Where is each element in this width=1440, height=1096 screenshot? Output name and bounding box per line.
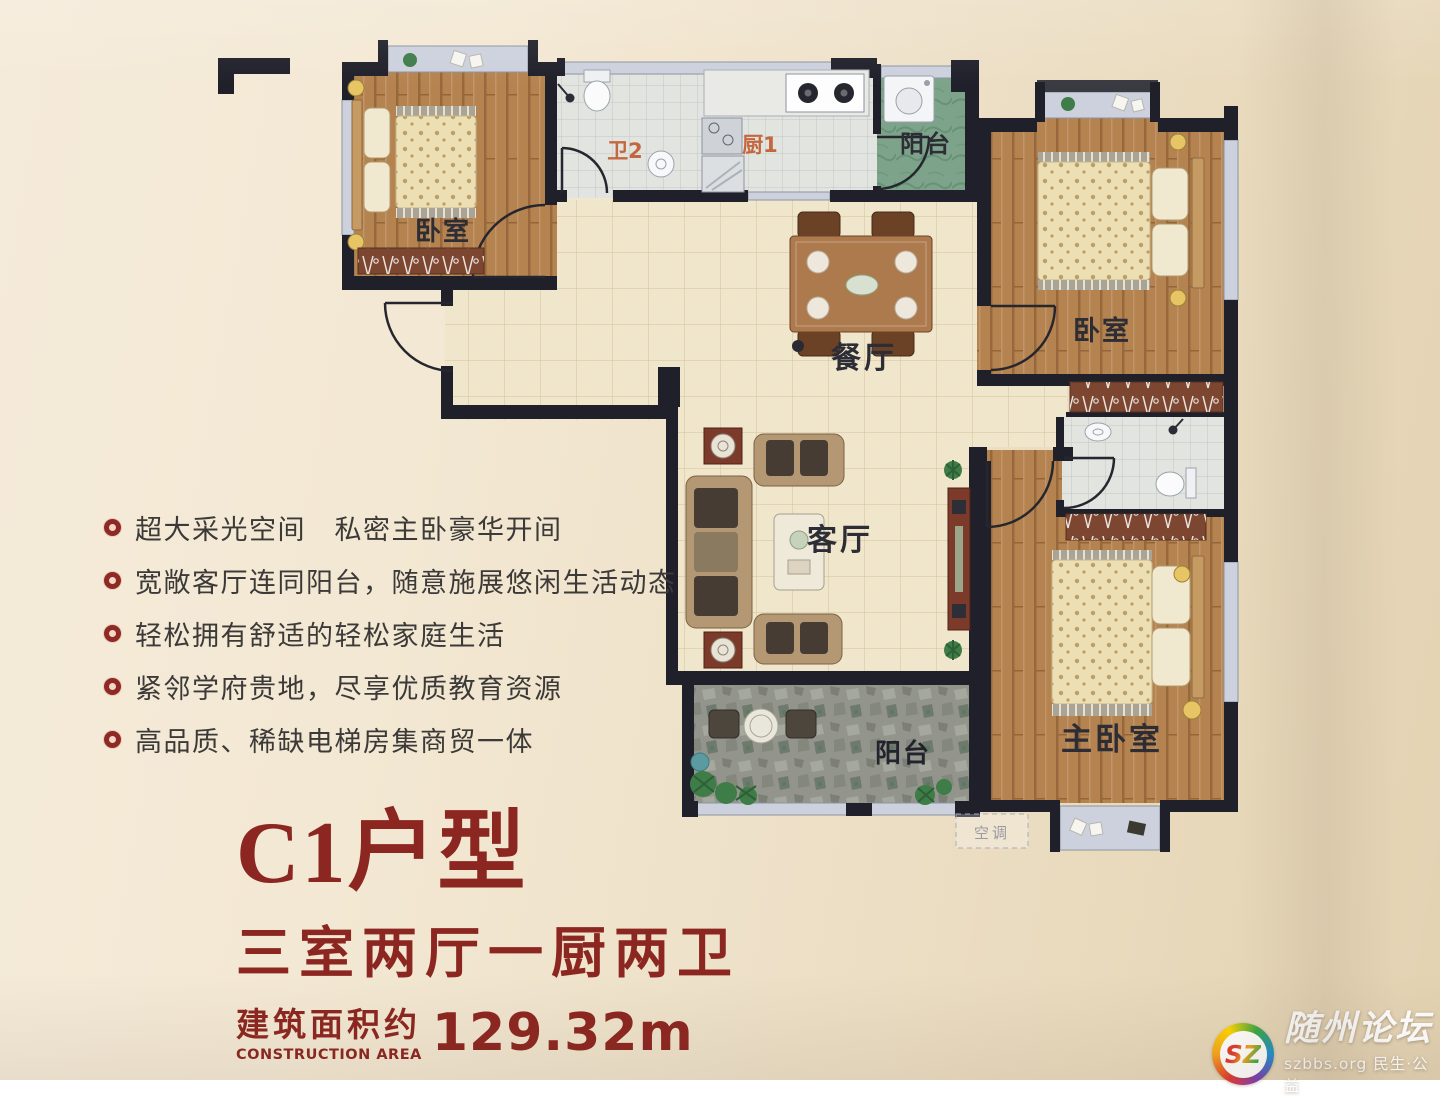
feature-item: 紧邻学府贵地，尽享优质教育资源 (104, 671, 677, 701)
patio-chair (786, 710, 816, 738)
toilet (1156, 472, 1184, 496)
nightstand-lamp (1170, 290, 1186, 306)
label-living: 客厅 (807, 523, 873, 558)
feature-text: 超大采光空间 私密主卧豪华开间 (135, 508, 563, 547)
area-value: 129.32m (432, 1003, 694, 1063)
pillow (364, 108, 390, 158)
feature-text: 紧邻学府贵地，尽享优质教育资源 (135, 667, 563, 706)
ac-platform: 空调 (956, 814, 1028, 848)
bed-quilt (1052, 560, 1152, 704)
feature-text: 高品质、稀缺电梯房集商贸一体 (135, 720, 534, 759)
bed-headboard (1192, 556, 1204, 698)
bullet-icon (104, 678, 121, 695)
label-bath2: 卫2 (607, 139, 643, 163)
kitchen-sink (702, 118, 742, 154)
label-balcony-bottom: 阳台 (875, 738, 931, 769)
feature-item: 轻松拥有舒适的轻松家庭生活 (104, 618, 677, 648)
title-block: C1户型 三室两厅一厨两卫 建筑面积约 CONSTRUCTION AREA 12… (236, 810, 740, 1063)
bed-quilt (1038, 162, 1150, 280)
label-bedroom-topleft: 卧室 (415, 216, 471, 247)
label-bedroom-right: 卧室 (1073, 315, 1131, 347)
floor-closet-nook (977, 386, 1067, 447)
feature-text: 轻松拥有舒适的轻松家庭生活 (135, 614, 506, 653)
place-setting (807, 297, 829, 319)
label-ac: 空调 (974, 824, 1010, 842)
wash-basin (648, 151, 674, 177)
label-master-bedroom: 主卧室 (1061, 722, 1163, 758)
label-dining: 餐厅 (831, 341, 897, 376)
bed-runner (1038, 280, 1150, 290)
unit-model: C1户型 (236, 810, 740, 898)
feature-text: 宽敞客厅连同阳台，随意施展悠闲生活动态 (135, 561, 677, 600)
bay-frame-bedroom-right (1037, 80, 1158, 92)
toilet-tank (584, 70, 610, 82)
toilet (584, 81, 610, 111)
bed-runner (1052, 550, 1152, 560)
nightstand-lamp (1174, 566, 1190, 582)
unit-layout: 三室两厅一厨两卫 (236, 926, 740, 981)
bullet-icon (104, 731, 121, 748)
feature-item: 超大采光空间 私密主卧豪华开间 (104, 512, 677, 542)
feature-item: 宽敞客厅连同阳台，随意施展悠闲生活动态 (104, 565, 677, 595)
floor-bath2 (557, 62, 700, 198)
window-bedroom-right (1224, 140, 1238, 300)
pillow (1152, 628, 1190, 686)
dining-chair (872, 212, 914, 238)
feature-item: 高品质、稀缺电梯房集商贸一体 (104, 724, 677, 754)
watermark: SZ 随州论坛 szbbs.org 民生·公益 (1212, 1012, 1440, 1096)
pendant-lamp (792, 340, 804, 352)
logo-letters: SZ (1225, 1040, 1261, 1069)
area-label-cn: 建筑面积约 (236, 1007, 422, 1043)
toilet-tank (1186, 468, 1196, 498)
bed-runner (396, 106, 476, 116)
patio-chair (709, 710, 739, 738)
label-kitchen: 厨1 (742, 133, 778, 157)
place-setting (807, 251, 829, 273)
place-setting (895, 251, 917, 273)
patio-table (744, 709, 778, 743)
label-balcony-top: 阳台 (900, 130, 952, 158)
nightstand-lamp (1183, 701, 1201, 719)
window-master (1224, 562, 1238, 702)
bullet-icon (104, 519, 121, 536)
area-row: 建筑面积约 CONSTRUCTION AREA 129.32m (236, 1007, 740, 1063)
bed-runner (1038, 152, 1150, 162)
room-dining: 餐厅 (790, 212, 932, 376)
watermark-site-info: szbbs.org 民生·公益 (1284, 1052, 1440, 1096)
entry-door (385, 303, 453, 371)
bed-runner (1052, 704, 1152, 716)
dining-chair (798, 212, 840, 238)
pillow (1152, 168, 1188, 220)
planter (691, 753, 709, 771)
centerpiece (846, 275, 878, 295)
area-label-en: CONSTRUCTION AREA (236, 1047, 422, 1063)
place-setting (895, 297, 917, 319)
bullet-icon (104, 572, 121, 589)
feature-list: 超大采光空间 私密主卧豪华开间 宽敞客厅连同阳台，随意施展悠闲生活动态 轻松拥有… (104, 512, 677, 777)
watermark-site-name: 随州论坛 (1284, 1012, 1440, 1047)
kitchen-pass-opening (748, 192, 830, 200)
pillow (364, 162, 390, 212)
bed-quilt (396, 116, 476, 208)
nightstand-lamp (348, 80, 364, 96)
nightstand-lamp (1170, 134, 1186, 150)
szbbs-logo-icon: SZ (1212, 1023, 1274, 1085)
wash-basin (1085, 423, 1111, 441)
bed-headboard (1192, 158, 1204, 288)
pillow (1152, 224, 1188, 276)
bed-headboard (352, 100, 362, 230)
bullet-icon (104, 625, 121, 642)
